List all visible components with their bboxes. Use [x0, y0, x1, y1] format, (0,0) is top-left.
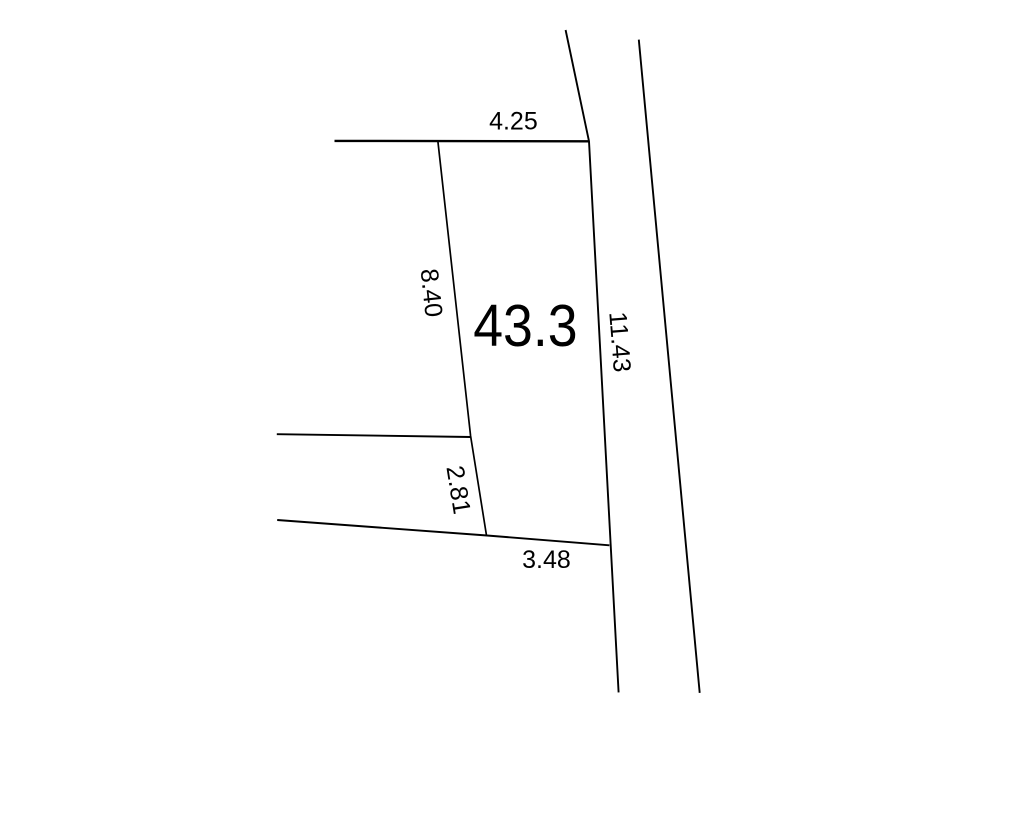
- svg-text:3.48: 3.48: [522, 546, 571, 574]
- svg-text:8.40: 8.40: [415, 267, 448, 318]
- svg-text:43.3: 43.3: [473, 292, 577, 358]
- svg-text:11.43: 11.43: [603, 311, 636, 374]
- svg-text:4.25: 4.25: [489, 107, 538, 135]
